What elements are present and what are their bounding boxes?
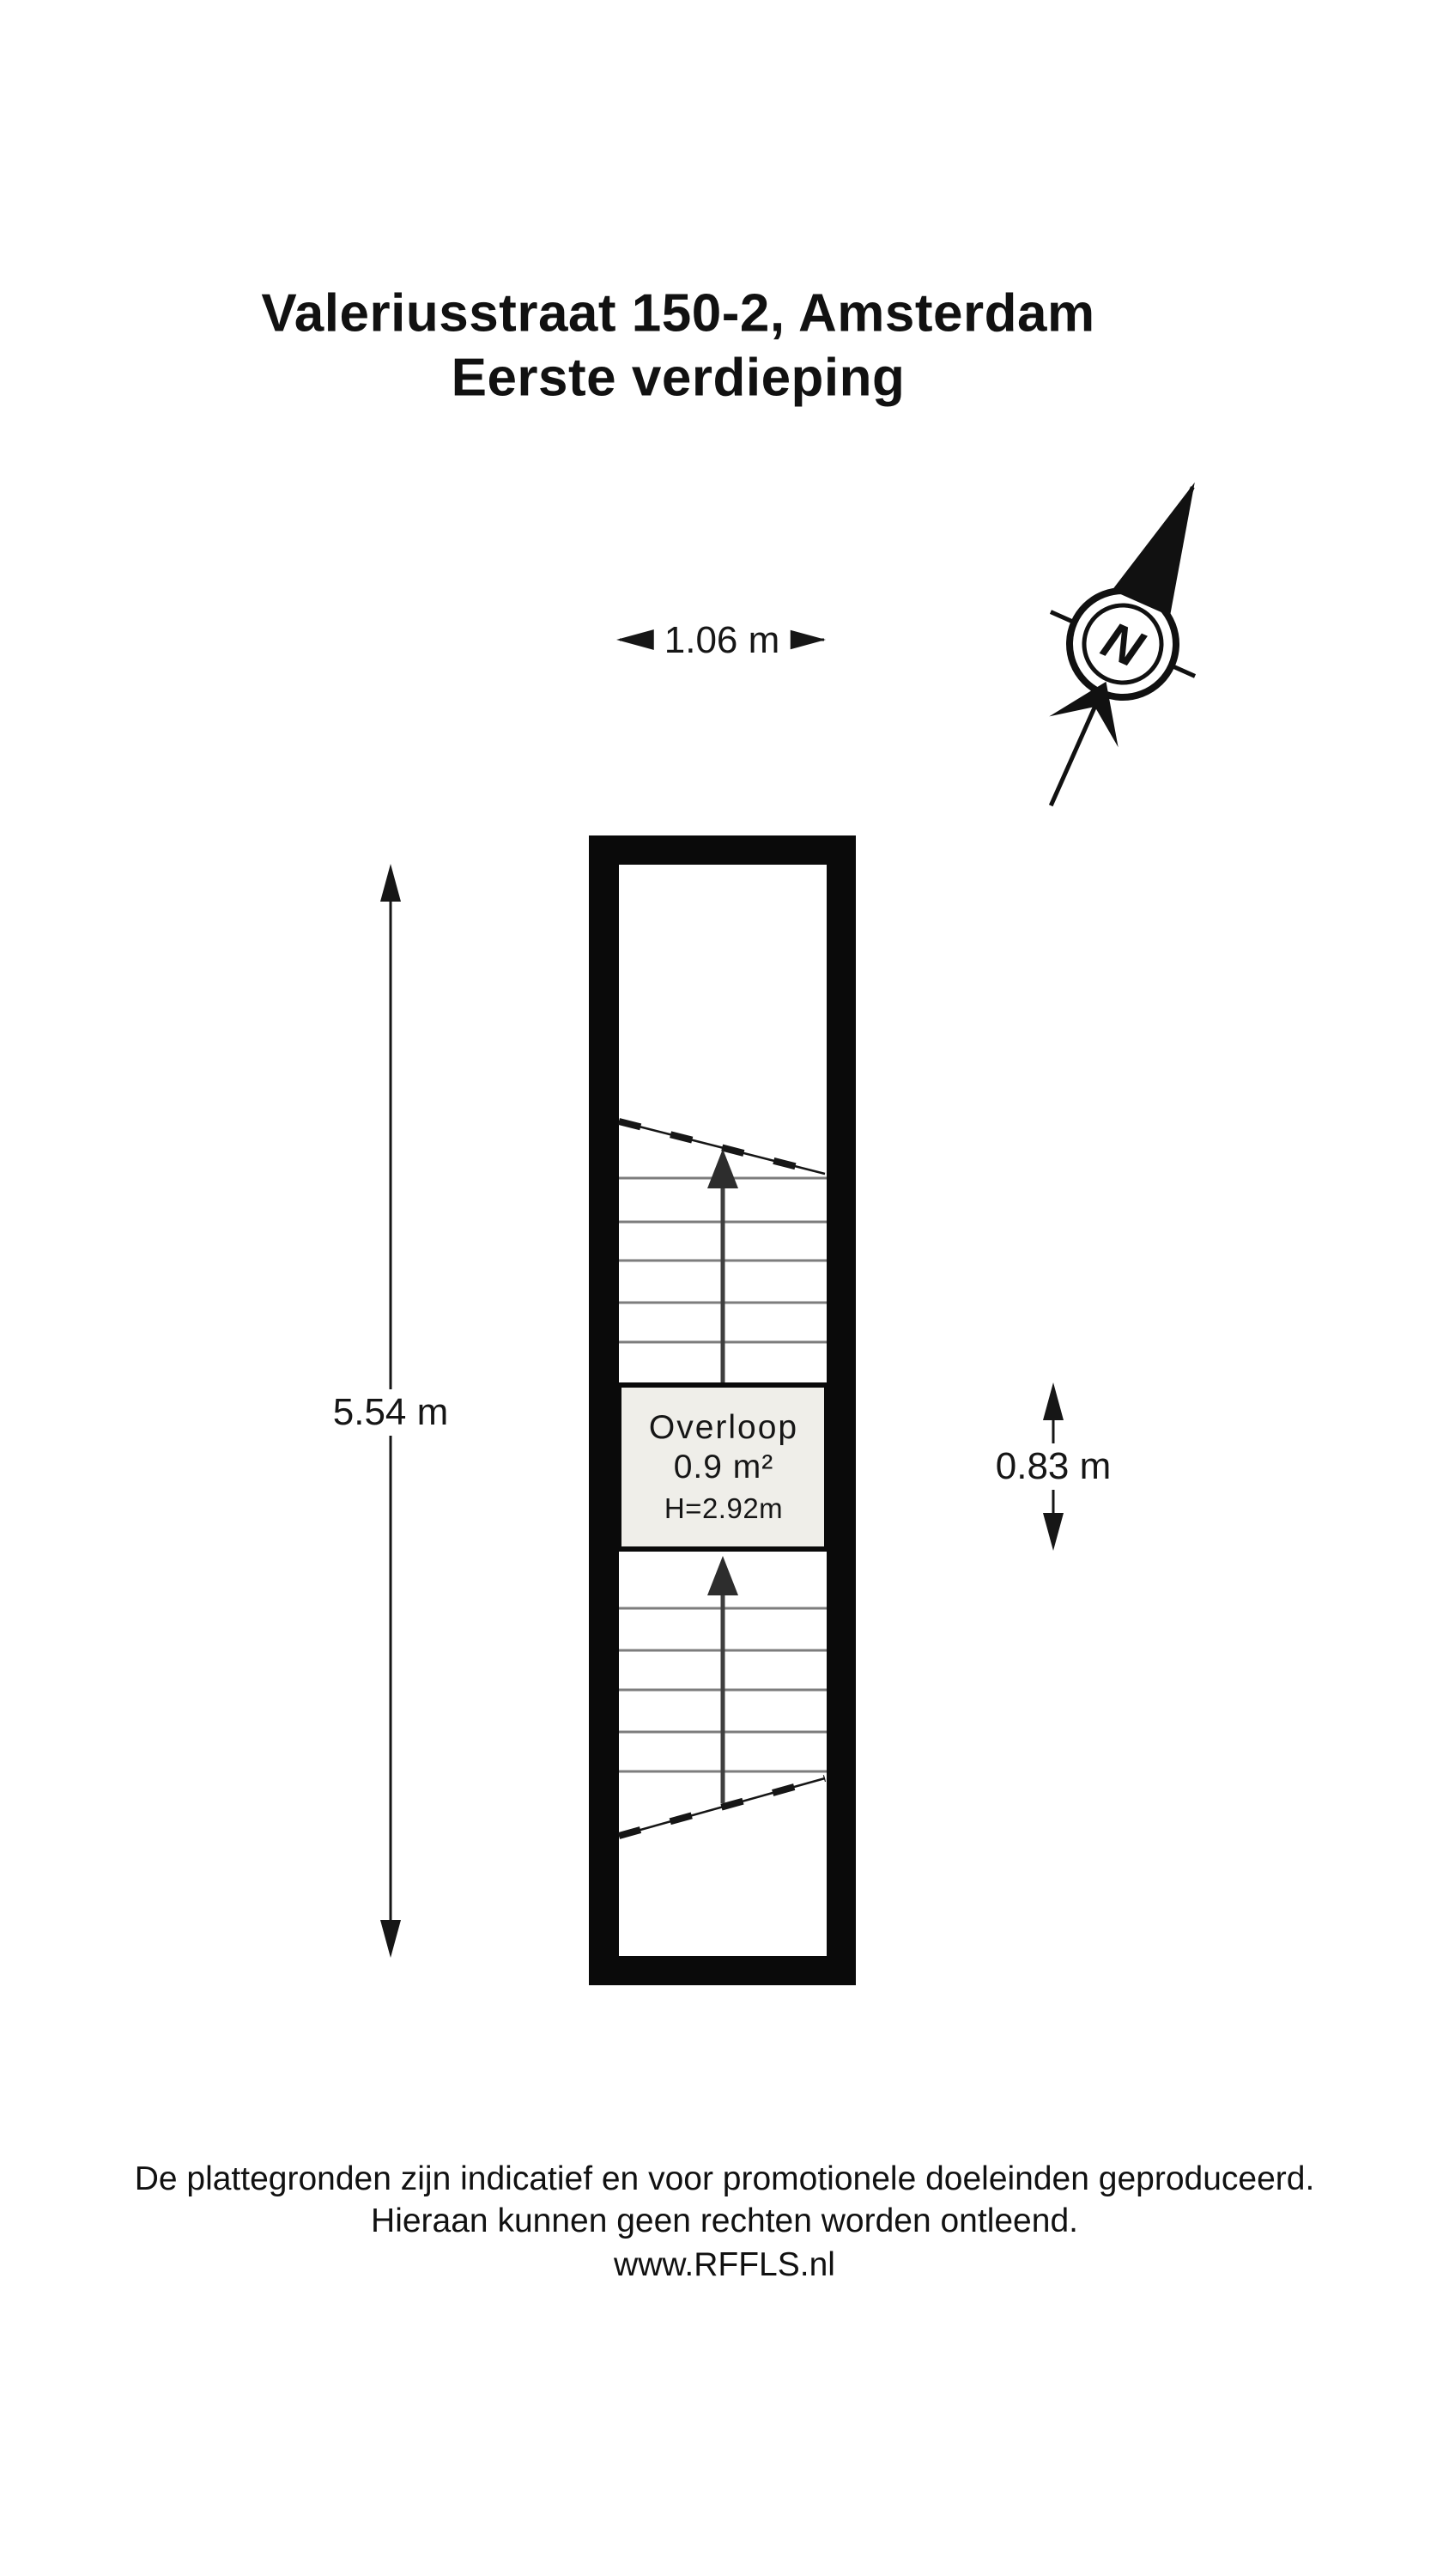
room-name-label: Overloop [649,1409,798,1447]
room-ceiling-height-label: H=2.92m [664,1492,783,1525]
plan-title-address: Valeriusstraat 150-2, Amsterdam [261,283,1094,344]
dimension-label-landing: 0.83 m [985,1443,1122,1490]
dimension-label-height: 5.54 m [323,1389,459,1436]
dimension-label-width: 1.06 m [654,617,791,664]
plan-title-floor: Eerste verdieping [452,348,906,409]
footer-disclaimer-line2: Hieraan kunnen geen rechten worden ontle… [371,2202,1078,2240]
floorplan-page: N Valeriusstraat 150-2, Amsterdam Eerste… [0,0,1449,2576]
room-area-label: 0.9 m² [674,1449,774,1486]
footer-website: www.RFFLS.nl [614,2246,835,2284]
compass-north-needle [1112,470,1223,617]
north-compass-icon: N [979,450,1267,837]
footer-disclaimer-line1: De plattegronden zijn indicatief en voor… [135,2160,1315,2198]
